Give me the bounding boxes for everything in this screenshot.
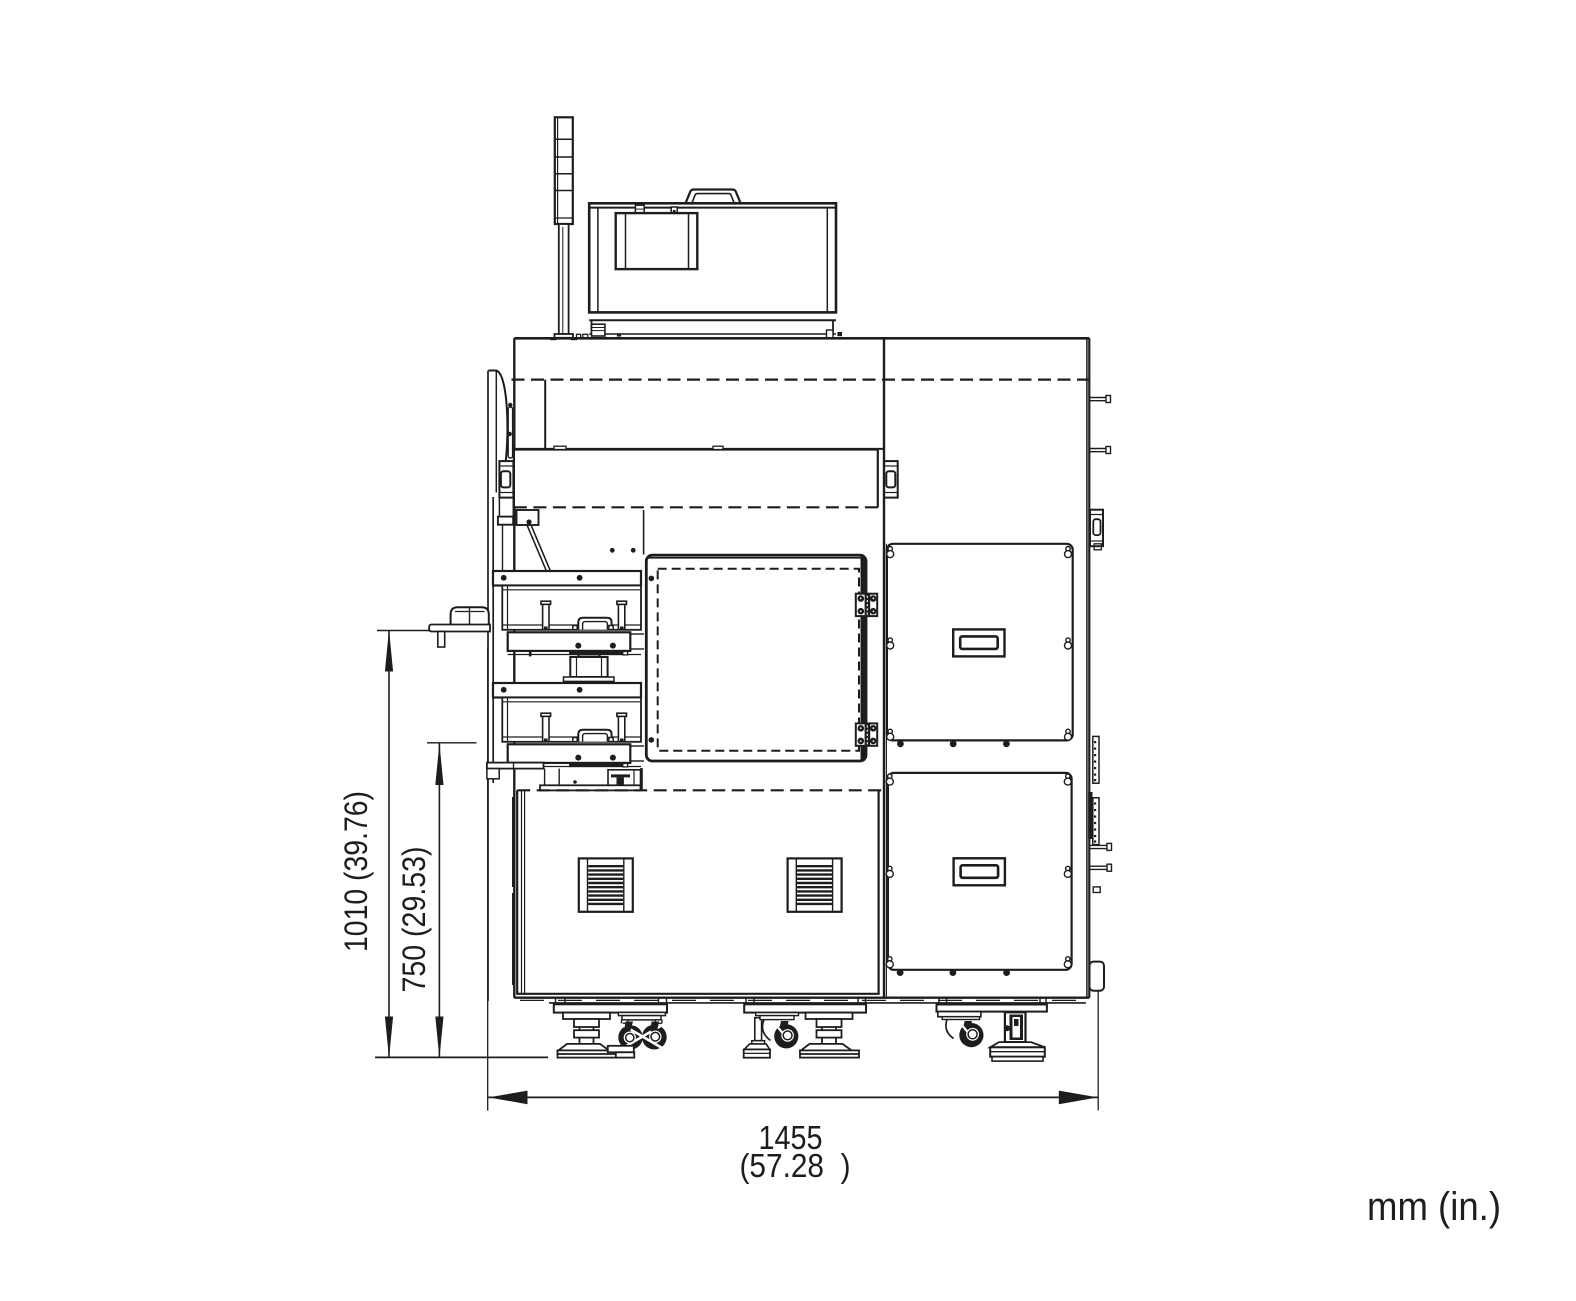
svg-text:(57.28 ): (57.28 ) xyxy=(740,1148,851,1185)
svg-text:1010 (39.76): 1010 (39.76) xyxy=(338,791,374,952)
svg-text:750 (29.53): 750 (29.53) xyxy=(396,847,432,993)
svg-text:mm (in.): mm (in.) xyxy=(1367,1185,1501,1229)
